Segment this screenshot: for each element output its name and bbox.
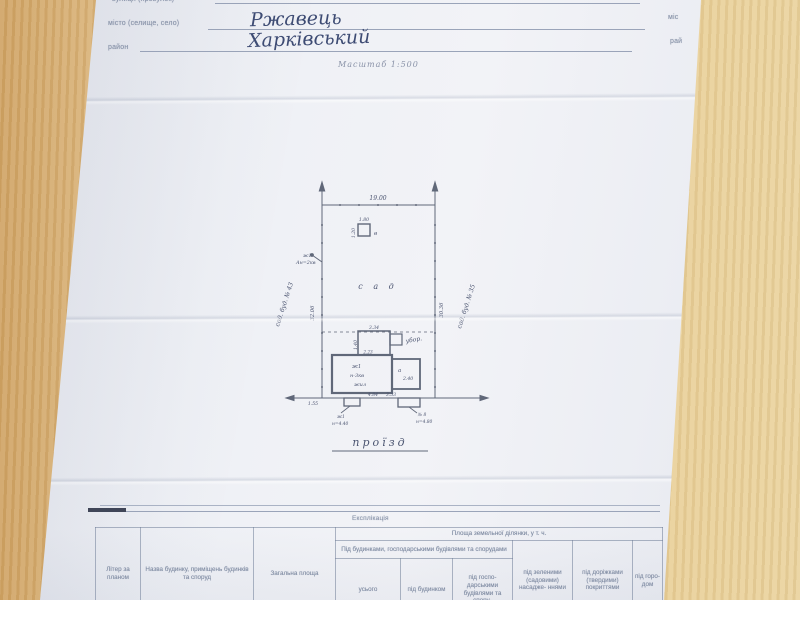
well-symbol xyxy=(358,224,370,236)
bottom-left-dim: 1.55 xyxy=(308,401,318,407)
fold-crease-1 xyxy=(30,93,720,106)
col-header-name: Назва будинку, приміщень будинків та спо… xyxy=(141,528,254,621)
annex-letter: а xyxy=(398,368,401,374)
right-edge-city-label: міс xyxy=(668,14,678,21)
col-header-under-house: під будинком xyxy=(401,559,453,621)
col-header-usogo: усього xyxy=(336,559,401,621)
scale-text: Масштаб 1:500 xyxy=(338,60,419,69)
explication-title: Експлікація xyxy=(352,515,389,522)
right-edge-district-label: рай xyxy=(670,38,682,45)
col-header-total-area: Загальна площа xyxy=(254,528,336,621)
well-letter: в xyxy=(374,231,377,237)
col-header-green: під зеленими (садовими) насадже- ннями xyxy=(513,541,573,621)
plan-right-dim: 30.36 xyxy=(439,302,445,318)
left-neighbor-label: сад. буд. № 43 xyxy=(274,282,295,328)
explication-table: Літер за планом Назва будинку, приміщень… xyxy=(95,527,663,621)
gate-left-label-1: ж1 xyxy=(337,415,345,420)
street-name: проїзд xyxy=(352,436,407,449)
arrow-up-right-icon xyxy=(432,182,437,191)
district-underline xyxy=(140,51,632,52)
plot-boundary xyxy=(322,205,435,398)
district-handwritten-value: Харківський xyxy=(248,26,371,52)
boundary-tick-dots xyxy=(321,204,436,388)
bottom-dim-1: 4.84 xyxy=(367,392,378,398)
house-annex xyxy=(392,359,420,389)
power-label-1: ж1 xyxy=(303,253,312,259)
well-height-dim: 1.20 xyxy=(351,228,357,238)
site-plan-drawing: 19.00 1.80 1.20 в ж1 Ан=2кв с а д 32.06 … xyxy=(240,165,530,465)
gate-left-label-2: н=4.40 xyxy=(332,422,349,427)
annex-dim: 2.40 xyxy=(402,376,413,382)
gate-right-label-2: н=4.80 xyxy=(416,420,433,425)
gate-right-label-1: № 8 xyxy=(417,412,427,418)
group-header-under-buildings: Під будинками, господарськими будівлями … xyxy=(336,541,513,559)
power-label-2: Ан=2кв xyxy=(295,260,316,266)
well-width-dim: 1.80 xyxy=(359,217,369,223)
garden-label: с а д xyxy=(358,282,397,291)
district-label: район xyxy=(108,44,128,51)
fold-crease-3 xyxy=(30,474,720,486)
street-underline xyxy=(215,3,640,4)
main-house-label-1: ж1 xyxy=(352,364,361,370)
main-house-label-3: жил xyxy=(354,382,366,388)
top-building-bottom-dim: 2.23 xyxy=(362,350,373,355)
toilet-label: убор. xyxy=(404,335,423,345)
col-header-garden: під горо- дом xyxy=(633,541,663,621)
plan-left-dim: 32.06 xyxy=(310,305,316,321)
top-building-side-dim: 1.40 xyxy=(354,340,359,350)
table-top-rule-1 xyxy=(100,505,660,506)
main-house-label-2: н-3кв xyxy=(350,373,364,379)
arrow-left-icon xyxy=(286,395,294,400)
photo-of-document: вулиця (провулок) місто (селище, село) Р… xyxy=(0,0,800,600)
outbuilding-notch xyxy=(390,334,402,345)
dark-line-segment xyxy=(88,508,126,512)
top-building-dim: 3.34 xyxy=(369,325,379,331)
bottom-dim-2: 3.53 xyxy=(386,392,396,398)
paper-sheet: вулиця (провулок) місто (селище, село) Р… xyxy=(0,0,800,600)
gate-left xyxy=(344,398,360,406)
city-label: місто (селище, село) xyxy=(108,20,179,27)
plan-top-dim: 19.00 xyxy=(369,195,386,202)
street-label: вулиця (провулок) xyxy=(112,0,174,3)
col-header-litera: Літер за планом xyxy=(96,528,141,621)
arrow-right-icon xyxy=(480,395,488,400)
right-neighbor-label: сад. буд. № 35 xyxy=(456,284,477,330)
table-top-rule-2 xyxy=(100,511,660,512)
col-header-under-econ: під госпо- дарськими будівлями та спору- xyxy=(453,559,513,621)
gate-right xyxy=(398,398,420,407)
arrow-up-left-icon xyxy=(319,182,324,191)
col-header-paths: під доріжками (твердими) покриттями xyxy=(573,541,633,621)
group-header-plot-area: Площа земельної ділянки, у т. ч. xyxy=(336,528,663,541)
